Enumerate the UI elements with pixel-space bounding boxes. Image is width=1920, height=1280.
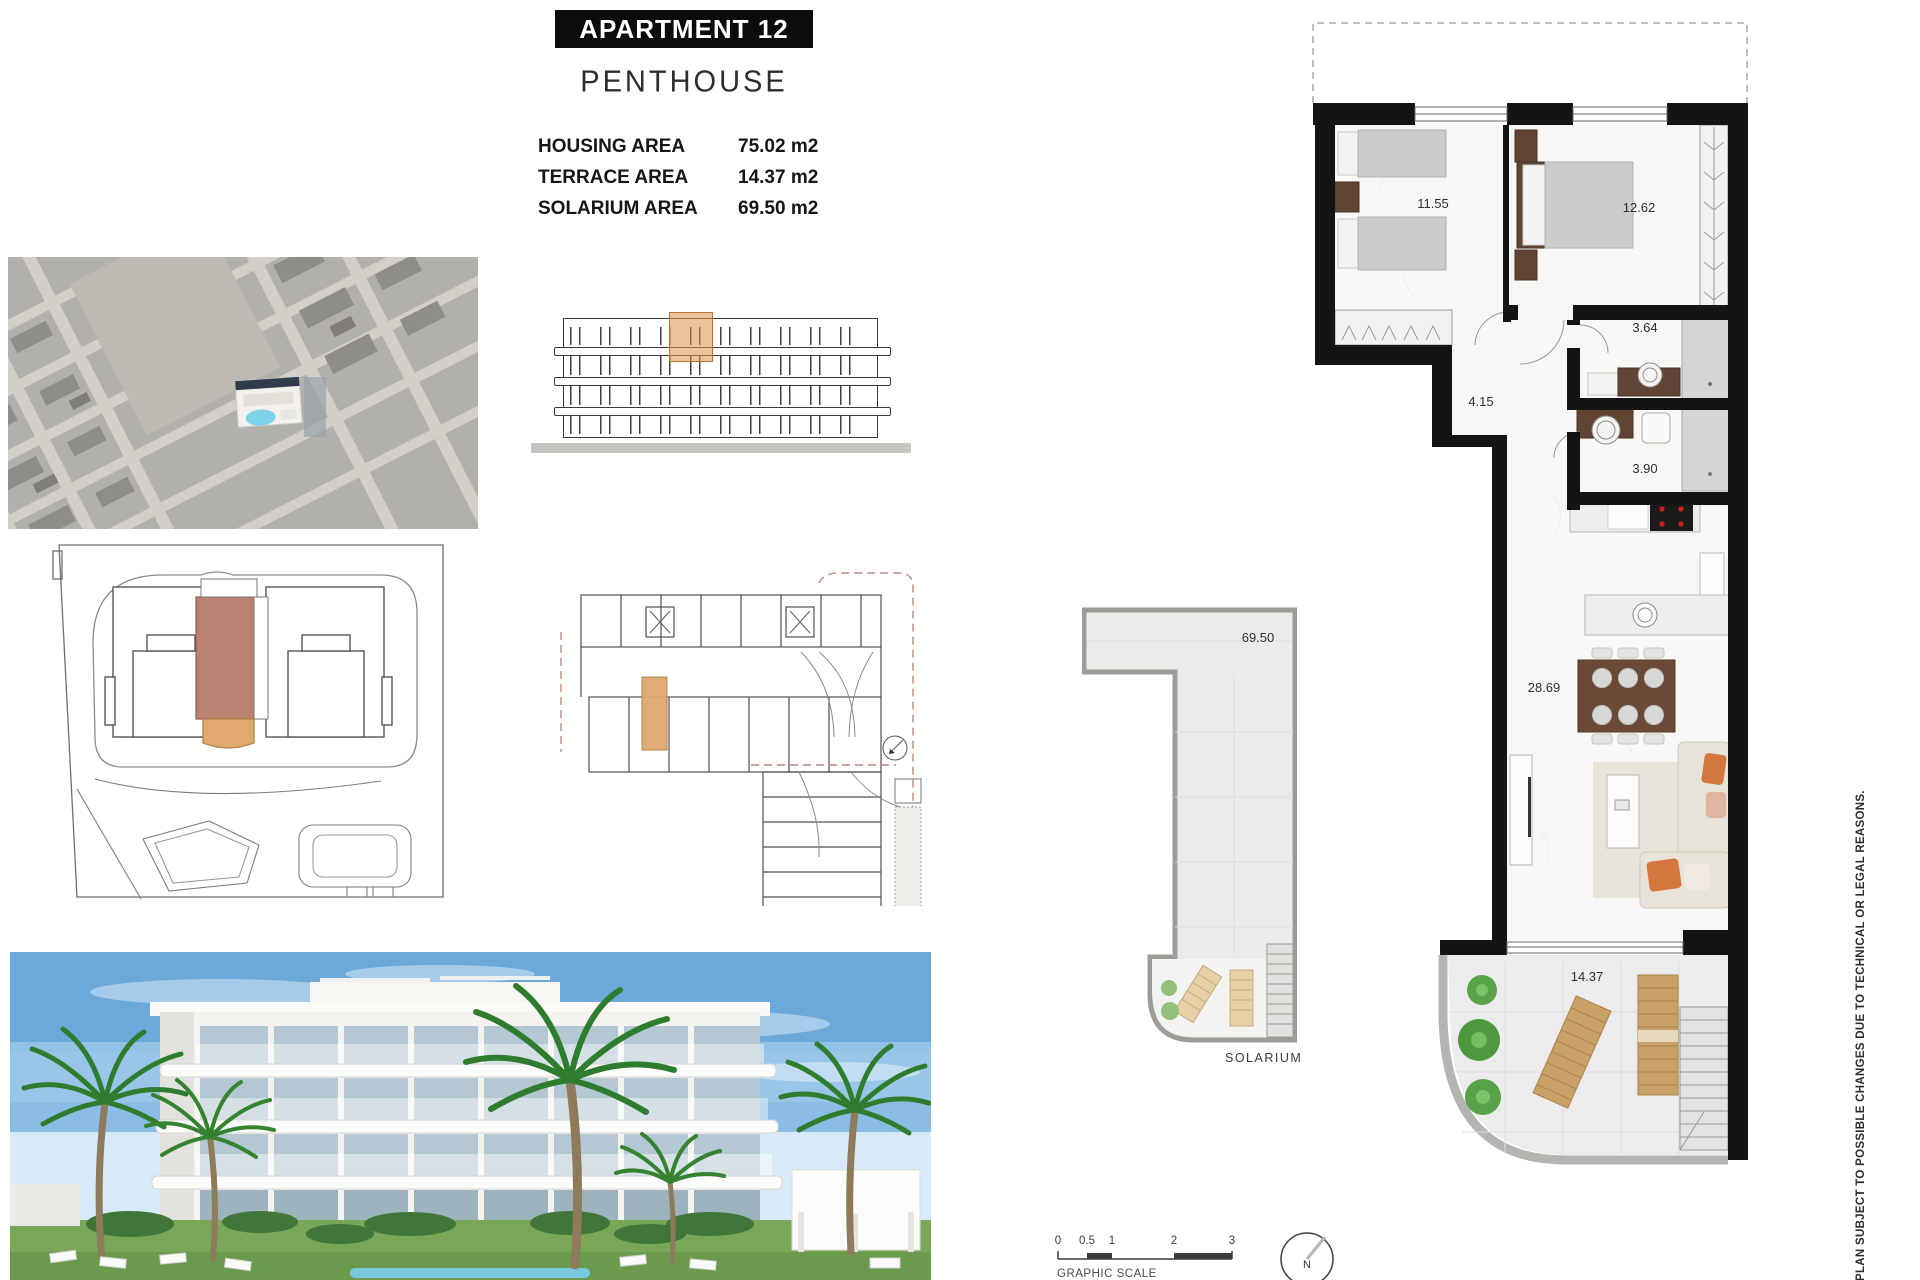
housing-area-value: 75.02 m2 (738, 136, 818, 158)
highlighted-unit-elevation (669, 312, 713, 362)
scale-tick-2: 2 (1171, 1235, 1177, 1247)
compass-north-label: N (1303, 1259, 1311, 1271)
solarium-caption: SOLARIUM (1225, 1051, 1315, 1065)
label-hall: 4.15 (1468, 394, 1493, 409)
apartment-title: APARTMENT 12 (555, 10, 813, 48)
graphic-scale: 0 0.5 1 2 3 GRAPHIC SCALE (1040, 1228, 1260, 1280)
label-bathroom1: 3.64 (1632, 320, 1657, 335)
site-plan-drawing (51, 539, 446, 902)
keyplan-compass-icon (883, 736, 907, 760)
solarium-plant-icon (1161, 980, 1177, 996)
scale-tick-1: 1 (1109, 1235, 1115, 1247)
terrace-stairs (1680, 1007, 1728, 1150)
solarium-area-figure: 69.50 (1242, 630, 1275, 645)
label-terrace: 14.37 (1571, 969, 1604, 984)
terrace-area-value: 14.37 m2 (738, 167, 818, 189)
compass-icon: N (1276, 1230, 1338, 1280)
scale-tick-05: 0.5 (1079, 1235, 1095, 1247)
solarium-area-value: 69.50 m2 (738, 198, 818, 220)
key-plan-drawing (551, 557, 931, 906)
apartment-floor-plan: 11.55 12.62 3.64 4.15 3.90 28.69 14.37 (1310, 12, 1765, 1167)
terrace-area-row: TERRACE AREA 14.37 m2 (538, 162, 838, 193)
solarium-area-label: SOLARIUM AREA (538, 198, 738, 220)
scale-caption: GRAPHIC SCALE (1057, 1268, 1157, 1280)
bedroom2-wardrobe (1335, 310, 1452, 345)
scale-tick-3: 3 (1229, 1235, 1235, 1247)
highlighted-unit-key (642, 677, 667, 750)
label-bedroom2: 11.55 (1417, 196, 1449, 211)
scale-tick-0: 0 (1055, 1235, 1061, 1247)
solarium-plant-icon (1161, 1002, 1179, 1020)
area-table: HOUSING AREA 75.02 m2 TERRACE AREA 14.37… (538, 131, 838, 224)
label-bathroom2: 3.90 (1632, 461, 1657, 476)
penthouse-subtitle: PENTHOUSE (545, 65, 823, 100)
disclaimer-text: PLAN SUBJECT TO POSSIBLE CHANGES DUE TO … (1855, 790, 1867, 1280)
elevation-building (563, 318, 878, 438)
solarium-outline-dashed (1313, 23, 1747, 103)
highlighted-building (235, 377, 302, 427)
dining-furniture (1578, 648, 1675, 744)
building-photo (10, 952, 931, 1280)
photo-pergola (792, 1170, 920, 1252)
label-living: 28.69 (1528, 680, 1561, 695)
photo-building (150, 978, 782, 1227)
bedroom1-wardrobe (1700, 125, 1728, 315)
solarium-area-row: SOLARIUM AREA 69.50 m2 (538, 193, 838, 224)
housing-area-label: HOUSING AREA (538, 136, 738, 158)
terrace-area-label: TERRACE AREA (538, 167, 738, 189)
highlighted-unit-site (196, 597, 254, 719)
aerial-map-image (8, 257, 478, 529)
elevation-drawing (539, 306, 902, 453)
elevation-ground (531, 443, 911, 453)
housing-area-row: HOUSING AREA 75.02 m2 (538, 131, 838, 162)
label-bedroom1: 12.62 (1623, 200, 1656, 215)
brochure-page: APARTMENT 12 PENTHOUSE HOUSING AREA 75.0… (0, 0, 1920, 1280)
solarium-plan: 69.50 (1082, 582, 1297, 1044)
